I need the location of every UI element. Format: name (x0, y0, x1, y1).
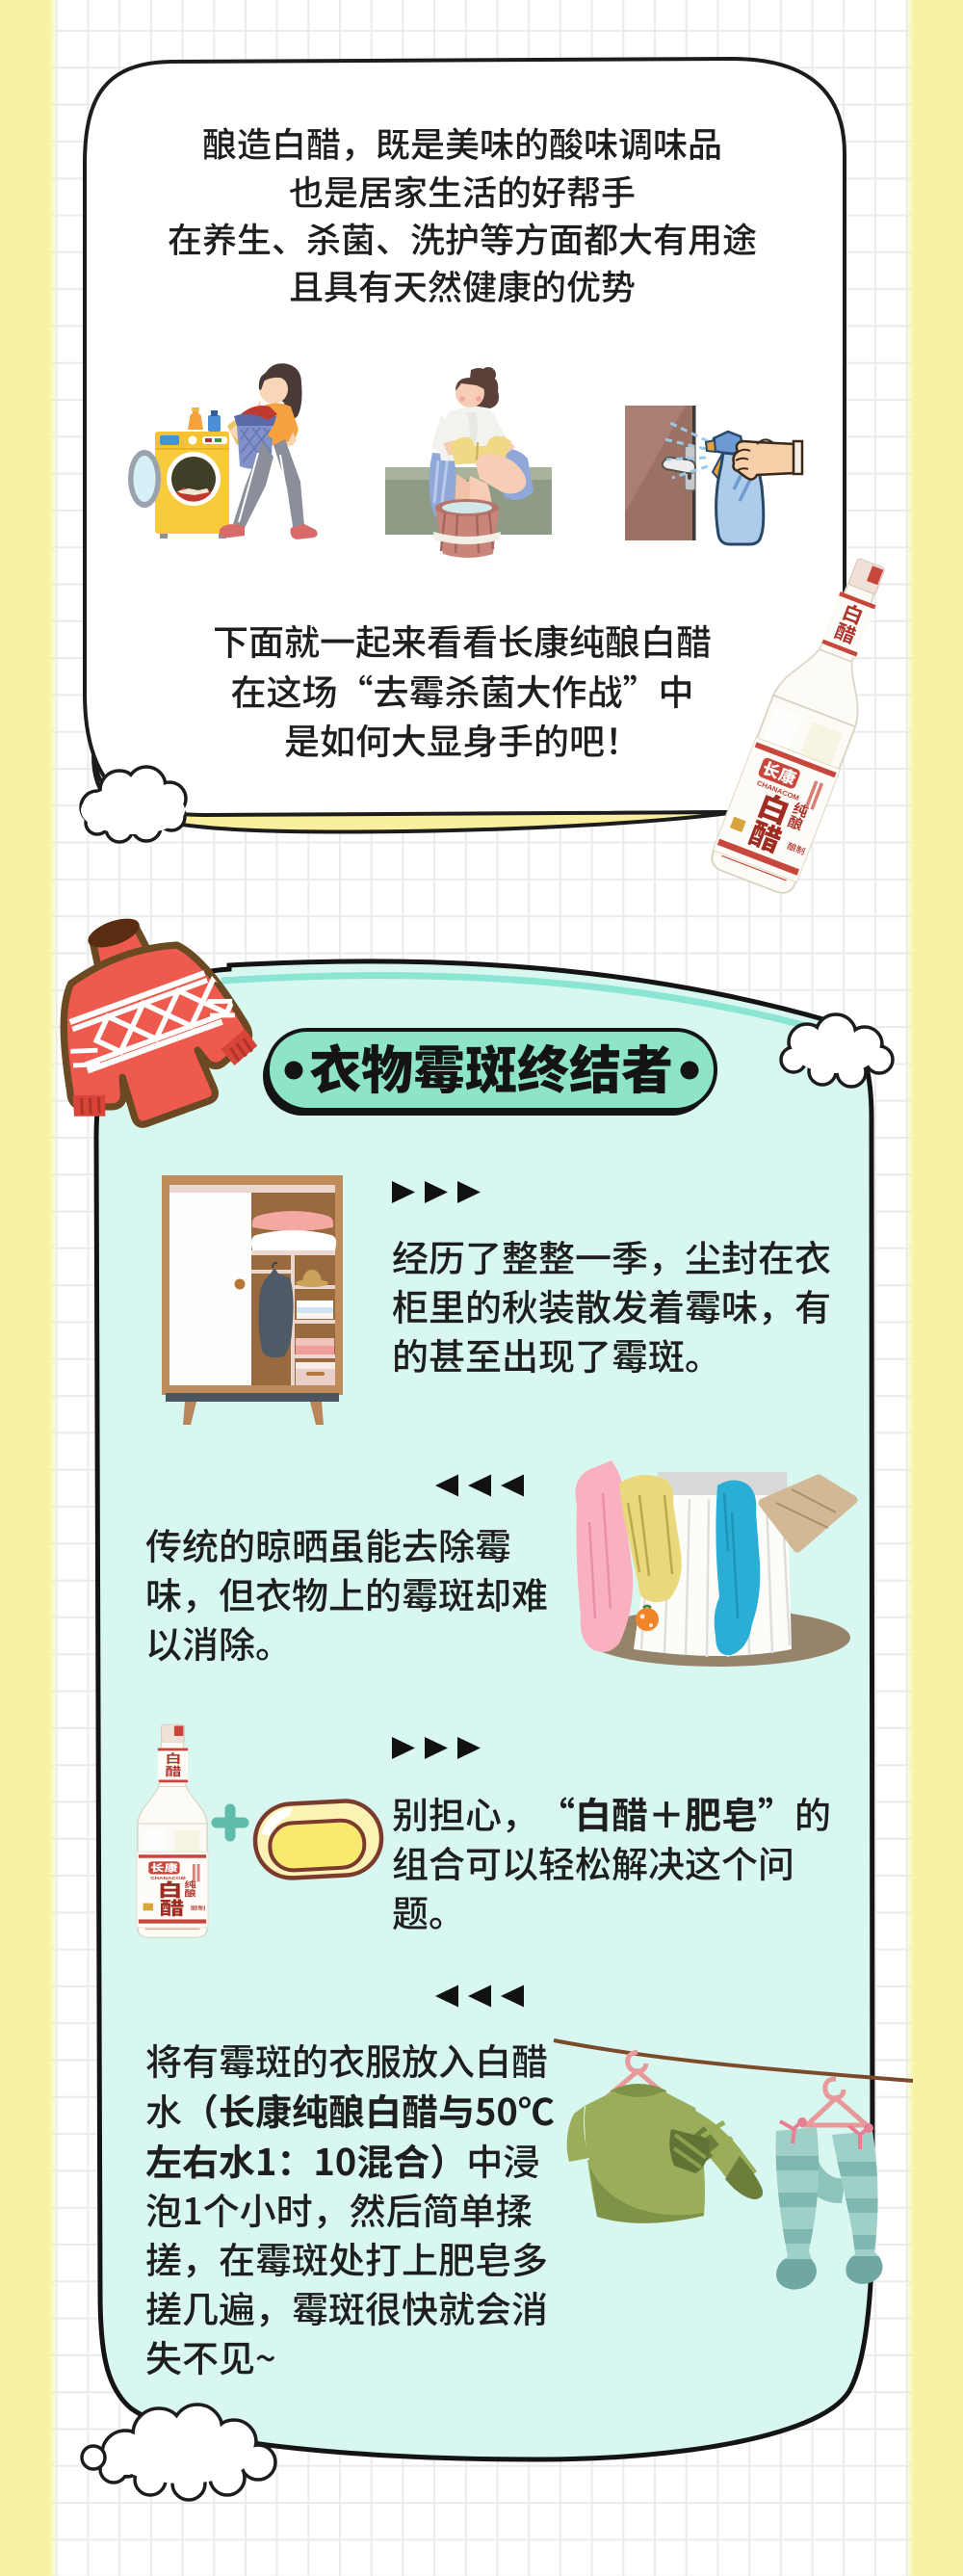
svg-text:CHANACOM: CHANACOM (150, 1877, 186, 1881)
